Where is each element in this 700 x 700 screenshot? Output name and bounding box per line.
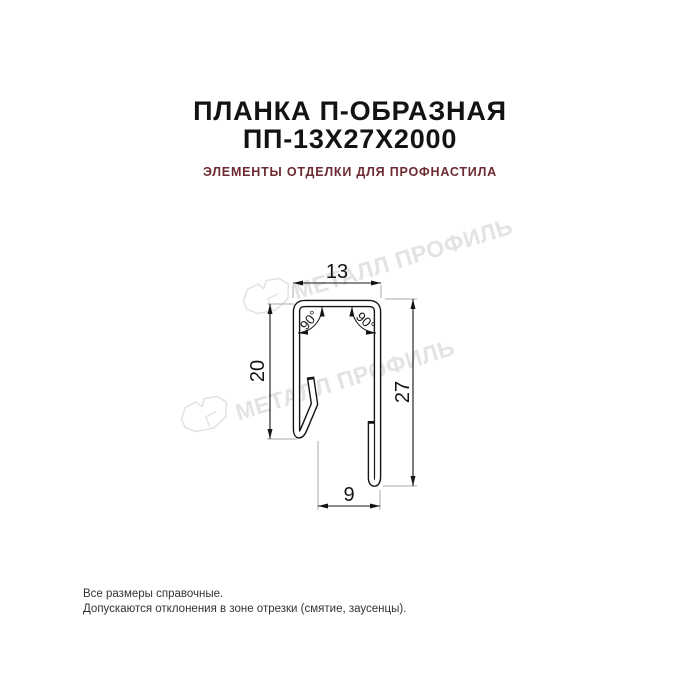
angle-left-label: 90° (297, 308, 322, 333)
footer-notes: Все размеры справочные. Допускаются откл… (83, 587, 406, 617)
footer-note-line1: Все размеры справочные. (83, 587, 406, 602)
dim-bottom-width-label: 9 (343, 484, 354, 506)
dim-left-height-label: 20 (247, 360, 269, 382)
dim-right-height-label: 27 (392, 381, 414, 403)
footer-note-line2: Допускаются отклонения в зоне отрезки (с… (83, 602, 406, 617)
dim-top-width-label: 13 (326, 261, 348, 283)
